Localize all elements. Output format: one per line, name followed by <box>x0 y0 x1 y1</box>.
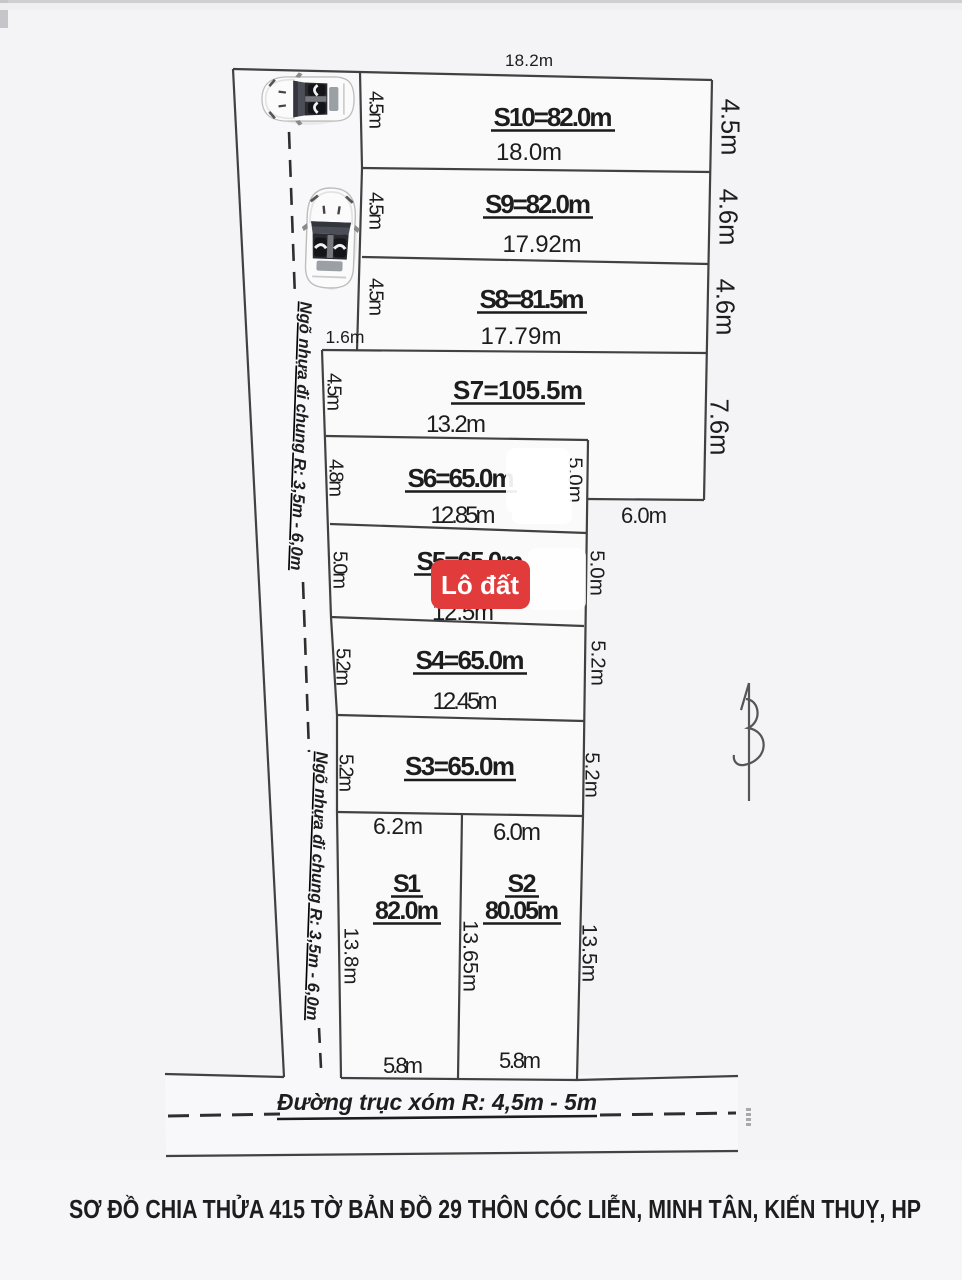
svg-text:4.5m: 4.5m <box>365 91 387 129</box>
svg-text:6.0m: 6.0m <box>621 503 667 528</box>
svg-text:S9=82.0m: S9=82.0m <box>485 189 591 219</box>
svg-text:S4=65.0m: S4=65.0m <box>416 645 525 675</box>
svg-text:S7=105.5m: S7=105.5m <box>453 375 583 405</box>
svg-text:5.2m: 5.2m <box>332 648 354 686</box>
svg-text:7.6m: 7.6m <box>704 399 732 456</box>
svg-text:4.6m: 4.6m <box>710 279 738 336</box>
svg-text:S10=82.0m: S10=82.0m <box>494 102 613 132</box>
svg-text:S2: S2 <box>508 870 537 898</box>
svg-text:12.85m: 12.85m <box>431 502 496 529</box>
svg-text:4.6m: 4.6m <box>713 189 741 246</box>
svg-text:5.0m: 5.0m <box>586 550 609 596</box>
svg-text:4.5m: 4.5m <box>715 99 743 156</box>
svg-text:4.5m: 4.5m <box>365 278 387 316</box>
svg-text:12.45m: 12.45m <box>433 688 498 715</box>
svg-text:4.5m: 4.5m <box>365 192 387 230</box>
svg-text:13.65m: 13.65m <box>458 920 482 992</box>
svg-text:13.5m: 13.5m <box>577 924 600 982</box>
svg-text:S6=65.0m: S6=65.0m <box>408 463 515 493</box>
svg-text:18.2m: 18.2m <box>505 51 553 70</box>
svg-text:S1: S1 <box>393 870 421 898</box>
svg-text:18.0m: 18.0m <box>496 139 562 166</box>
svg-text:6.0m: 6.0m <box>493 819 541 846</box>
svg-text:6.2m: 6.2m <box>373 813 423 839</box>
svg-text:S8=81.5m: S8=81.5m <box>480 284 585 314</box>
svg-text:5.0m: 5.0m <box>329 551 351 589</box>
svg-text:17.92m: 17.92m <box>503 231 582 258</box>
svg-text:13.8m: 13.8m <box>340 928 363 985</box>
svg-text:SƠ ĐỒ CHIA THỬA 415 TỜ BẢN ĐỒ: SƠ ĐỒ CHIA THỬA 415 TỜ BẢN ĐỒ 29 THÔN CÓ… <box>69 1193 921 1224</box>
svg-text:5.2m: 5.2m <box>581 752 604 798</box>
svg-text:5.2m: 5.2m <box>335 754 357 792</box>
svg-text:5.8m: 5.8m <box>499 1048 541 1073</box>
svg-text:17.79m: 17.79m <box>481 323 562 350</box>
svg-text:82.0m: 82.0m <box>375 897 439 925</box>
svg-text:5.2m: 5.2m <box>587 640 610 686</box>
svg-text:1.6m: 1.6m <box>326 327 365 347</box>
svg-text:4.8m: 4.8m <box>325 459 347 497</box>
svg-text:5.8m: 5.8m <box>383 1053 423 1078</box>
svg-text:4.5m: 4.5m <box>323 373 345 411</box>
svg-text:80.05m: 80.05m <box>485 897 559 925</box>
svg-text:S3=65.0m: S3=65.0m <box>405 751 515 781</box>
svg-text:Lô đất: Lô đất <box>441 570 519 600</box>
svg-text:13.2m: 13.2m <box>426 411 486 438</box>
svg-text:Đường trục xóm R: 4,5m - 5m: Đường trục xóm R: 4,5m - 5m <box>277 1089 597 1115</box>
